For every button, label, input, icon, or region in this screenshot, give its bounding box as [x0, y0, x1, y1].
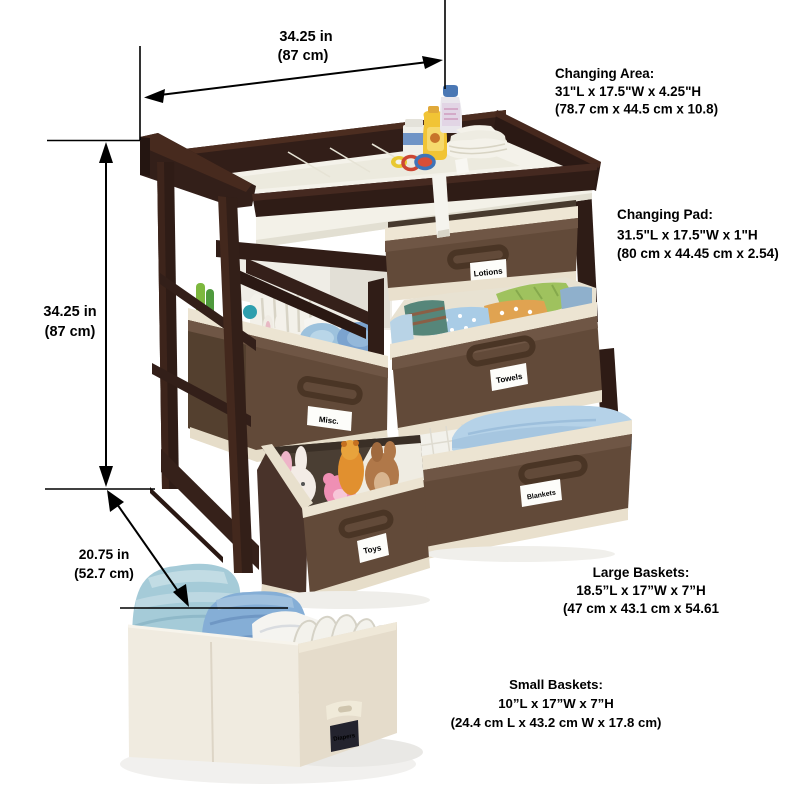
svg-text:18.5”L x 17”W x 7”H: 18.5”L x 17”W x 7”H — [576, 583, 706, 598]
svg-text:(24.4 cm L x 43.2 cm W x 17.8: (24.4 cm L x 43.2 cm W x 17.8 cm) — [451, 715, 662, 730]
svg-text:Large Baskets:: Large Baskets: — [593, 565, 690, 580]
svg-text:31"L x 17.5"W x 4.25"H: 31"L x 17.5"W x 4.25"H — [555, 84, 701, 99]
svg-text:34.25 in: 34.25 in — [43, 304, 96, 320]
svg-text:Changing Area:: Changing Area: — [555, 66, 654, 81]
svg-text:20.75 in: 20.75 in — [79, 547, 130, 562]
svg-text:10”L x 17”W x 7”H: 10”L x 17”W x 7”H — [498, 696, 614, 711]
svg-text:Changing Pad:: Changing Pad: — [617, 207, 713, 222]
svg-text:(87 cm): (87 cm) — [278, 48, 329, 64]
svg-text:(80 cm x 44.45 cm x 2.54): (80 cm x 44.45 cm x 2.54) — [617, 246, 779, 261]
svg-text:34.25 in: 34.25 in — [279, 29, 332, 45]
svg-text:(52.7 cm): (52.7 cm) — [74, 566, 134, 581]
svg-text:(78.7 cm x 44.5 cm x 10.8): (78.7 cm x 44.5 cm x 10.8) — [555, 102, 718, 117]
svg-text:Small Baskets:: Small Baskets: — [509, 677, 603, 692]
svg-text:(47 cm x 43.1 cm x 54.61: (47 cm x 43.1 cm x 54.61 — [563, 601, 720, 616]
svg-text:(87 cm): (87 cm) — [45, 324, 96, 340]
svg-text:31.5"L x 17.5"W x 1"H: 31.5"L x 17.5"W x 1"H — [617, 228, 758, 243]
